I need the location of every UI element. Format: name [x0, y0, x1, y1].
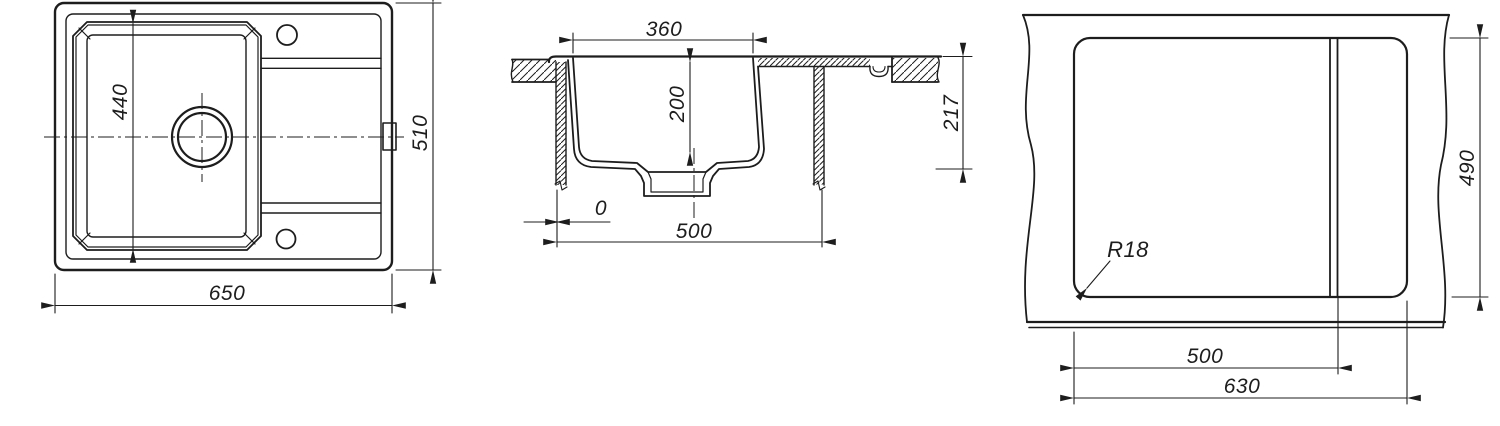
dim-label-overall-width: 650 — [209, 282, 246, 305]
dim-label-cut-height: 490 — [1456, 150, 1479, 187]
dim-label-corner-radius: R18 — [1107, 237, 1149, 262]
dim-label-mount-span: 500 — [676, 220, 713, 243]
dim-label-overall-cut-width: 630 — [1224, 375, 1261, 398]
countertop-right — [892, 58, 939, 83]
dim-label-bowl-depth: 200 — [666, 86, 689, 124]
dim-label-overall-depth: 510 — [409, 115, 432, 152]
dim-label-total-height: 217 — [940, 94, 963, 132]
clamp-left — [555, 62, 567, 190]
tap-hole-top — [277, 25, 297, 45]
dim-label-edge-offset: 0 — [595, 197, 607, 220]
bowl-section — [568, 58, 764, 196]
clamp-right — [813, 67, 825, 191]
break-line-right — [1438, 15, 1449, 328]
radius-leader — [1087, 261, 1110, 288]
drawing-sheet: 440 650 510 — [0, 0, 1500, 426]
section-view: 360 200 217 0 500 — [511, 18, 972, 247]
sink-deck-top — [549, 57, 941, 63]
dim-label-bowl-height: 440 — [109, 84, 132, 121]
dim-label-cut-width: 500 — [1187, 345, 1224, 368]
deck-section — [758, 58, 892, 77]
plan-view: 440 650 510 — [44, 3, 441, 313]
break-line-left — [1023, 15, 1034, 322]
countertop-outline — [1023, 15, 1449, 328]
technical-drawing-canvas: 440 650 510 — [0, 0, 1500, 426]
tap-hole-bottom — [277, 230, 296, 249]
dim-label-bowl-top-width: 360 — [646, 18, 683, 41]
cutout-view: R18 490 500 630 — [1023, 15, 1488, 404]
